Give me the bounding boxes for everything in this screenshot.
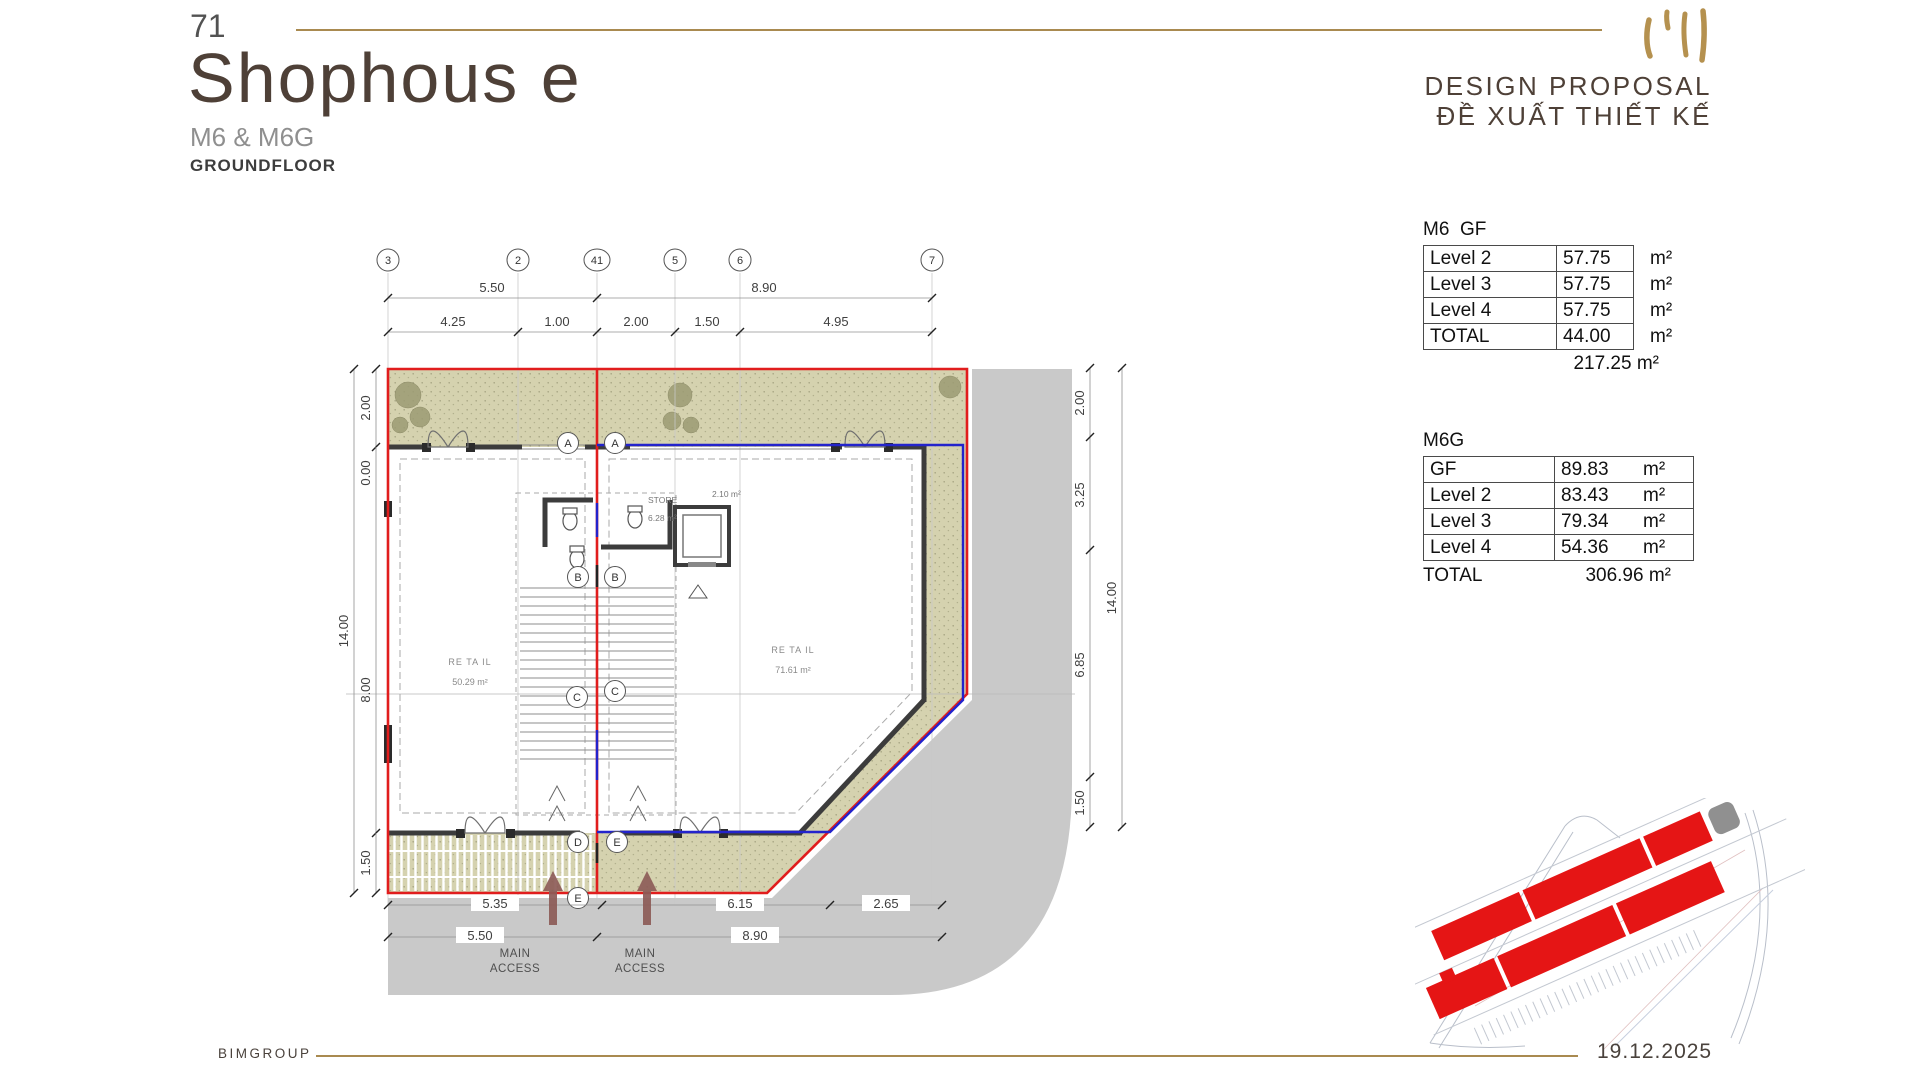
section-bubble: C [611,686,619,698]
deck-stripes [390,835,595,891]
section-bubble: C [573,692,581,704]
table-m6g: M6G GF 89.83 m² Level 2 83.43 m² Level 3… [1423,430,1694,587]
row-unit: m² [1634,272,1679,298]
row-value: 83.43 [1555,483,1638,509]
section-bubble: B [611,572,618,584]
grid-bubble: 3 [385,255,391,267]
dim-label: 2.00 [358,395,373,420]
table-row: Level 2 83.43 m² [1424,483,1694,509]
toilet-icon [628,506,642,528]
row-unit: m² [1637,509,1694,535]
dim-left: 2.00 0.00 14.00 8.00 1.50 [336,365,380,897]
row-value: 57.75 [1557,272,1634,298]
total-label: TOTAL [1423,565,1482,587]
dim-label: 3.25 [1072,482,1087,507]
footer-company: BIMGROUP [218,1046,312,1061]
section-bubble: A [611,438,619,450]
dim-label: 5.35 [482,896,507,911]
building-block-red [1415,811,1734,1019]
row-unit: m² [1637,457,1694,483]
room-name: RE TA IL [448,657,491,667]
total-value: 306.96 m² [1585,565,1671,587]
row-label: Level 3 [1424,272,1557,298]
elevator [675,507,729,567]
dim-label: 4.25 [440,314,465,329]
table-m6-grid: Level 2 57.75 m² Level 3 57.75 m² Level … [1423,245,1679,350]
table-row: Level 4 54.36 m² [1424,535,1694,561]
row-unit: m² [1637,483,1694,509]
row-label: GF [1424,457,1555,483]
dim-label: 1.50 [358,850,373,875]
dim-label: 2.00 [623,314,648,329]
table-row: GF 89.83 m² [1424,457,1694,483]
dim-label: 14.00 [1104,582,1119,615]
row-value: 54.36 [1555,535,1638,561]
page-subtitle: M6 & M6G [190,122,314,153]
dim-label: 2.65 [873,896,898,911]
header-divider-line [296,29,1602,31]
floor-label: GROUNDFLOOR [190,156,336,176]
table-m6g-title: M6G [1423,430,1694,452]
room-name: RE TA IL [771,645,814,655]
footer-date: 19.12.2025 [1597,1040,1712,1064]
row-value: 89.83 [1555,457,1638,483]
grid-bubble: 5 [672,255,678,267]
table-m6g-grid: GF 89.83 m² Level 2 83.43 m² Level 3 79.… [1423,456,1694,561]
toilet-icon [570,546,584,568]
access-label: MAIN [500,948,531,960]
row-label: Level 4 [1424,535,1555,561]
grid-bubble: 7 [929,255,935,267]
table-row: Level 4 57.75 m² [1424,298,1679,324]
room-name: STORE [648,495,677,505]
dim-label: 0.00 [358,460,373,485]
row-unit: m² [1634,298,1679,324]
table-m6: M6 GF Level 2 57.75 m² Level 3 57.75 m² … [1423,219,1679,375]
dim-label: 5.50 [479,280,504,295]
row-label: Level 4 [1424,298,1557,324]
dim-label: 1.50 [694,314,719,329]
section-bubble: D [574,837,582,849]
room-area: 71.61 m² [775,665,811,675]
row-label: Level 3 [1424,509,1555,535]
section-bubble: E [613,837,620,849]
row-unit: m² [1634,246,1679,272]
dim-top-row1: 5.50 8.90 [384,280,936,302]
room-area: 50.29 m² [452,677,488,687]
page-title: Shophous e [188,38,582,118]
dim-label: 14.00 [336,615,351,648]
floor-plan: 3 2 41 5 6 7 A A B B C C D E E 5.50 8.90… [330,245,1190,1030]
proposal-heading-en: DESIGN PROPOSAL [1425,72,1712,102]
row-unit: m² [1634,324,1679,350]
site-buildings [1415,798,1805,1053]
toilet-icon [563,508,577,530]
table-m6-title: M6 GF [1423,219,1679,241]
dim-label: 5.50 [467,928,492,943]
dim-label: 2.00 [1072,390,1087,415]
dim-label: 4.95 [823,314,848,329]
access-label: MAIN [625,948,656,960]
building-block-gray [1706,800,1742,837]
brand-logo-icon [1638,4,1718,64]
grid-bubble: 2 [515,255,521,267]
section-bubble: B [574,572,581,584]
row-value: 79.34 [1555,509,1638,535]
dim-label: 8.90 [751,280,776,295]
table-row: Level 3 79.34 m² [1424,509,1694,535]
grid-bubbles: 3 2 41 5 6 7 [377,249,943,271]
dim-label: 6.15 [727,896,752,911]
dim-top-row2: 4.25 1.00 2.00 1.50 4.95 [384,314,936,336]
dim-label: 8.00 [358,677,373,702]
row-label: TOTAL [1424,324,1557,350]
room-area: 2.10 m² [712,489,741,499]
access-label: ACCESS [490,963,540,975]
room-area: 6.28 m² [648,513,677,523]
stair-direction-marker [689,585,707,598]
row-value: 44.00 [1557,324,1634,350]
row-value: 57.75 [1557,298,1634,324]
footer-divider-line [316,1055,1578,1057]
row-label: Level 2 [1424,246,1557,272]
row-label: Level 2 [1424,483,1555,509]
table-m6g-total: TOTAL 306.96 m² [1423,565,1671,587]
dim-label: 1.00 [544,314,569,329]
section-bubble: A [564,438,572,450]
grid-bubble: 41 [591,255,603,267]
dim-label: 6.85 [1072,652,1087,677]
row-unit: m² [1637,535,1694,561]
dim-right: 2.00 3.25 6.85 1.50 14.00 [1072,364,1126,831]
table-row: TOTAL 44.00 m² [1424,324,1679,350]
dim-label: 1.50 [1072,790,1087,815]
site-key-map [1415,798,1805,1053]
table-row: Level 2 57.75 m² [1424,246,1679,272]
proposal-heading-vi: ĐỀ XUẤT THIẾT KẾ [1425,102,1712,132]
row-value: 57.75 [1557,246,1634,272]
table-row: Level 3 57.75 m² [1424,272,1679,298]
grid-bubble: 6 [737,255,743,267]
access-label: ACCESS [615,963,665,975]
section-bubble: E [574,893,581,905]
proposal-heading: DESIGN PROPOSAL ĐỀ XUẤT THIẾT KẾ [1425,72,1712,132]
dim-label: 8.90 [742,928,767,943]
table-m6-grand-total: 217.25 m² [1423,353,1659,375]
